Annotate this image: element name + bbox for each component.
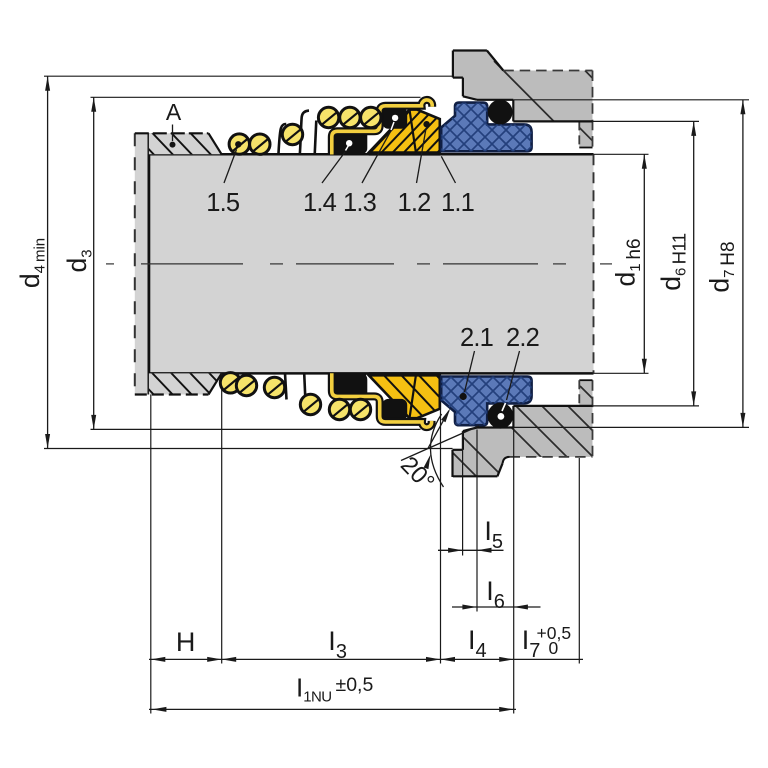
- svg-text:1.2: 1.2: [397, 189, 430, 217]
- svg-text:2.1: 2.1: [460, 324, 493, 352]
- svg-text:A: A: [166, 99, 182, 125]
- svg-text:1.4: 1.4: [303, 189, 337, 217]
- svg-text:±0,5: ±0,5: [336, 674, 374, 696]
- svg-text:1.1: 1.1: [441, 189, 474, 217]
- svg-text:1.5: 1.5: [206, 189, 240, 217]
- svg-text:H: H: [176, 627, 196, 657]
- svg-text:0: 0: [549, 638, 559, 658]
- svg-text:2.2: 2.2: [506, 324, 539, 352]
- svg-text:1.3: 1.3: [343, 189, 377, 217]
